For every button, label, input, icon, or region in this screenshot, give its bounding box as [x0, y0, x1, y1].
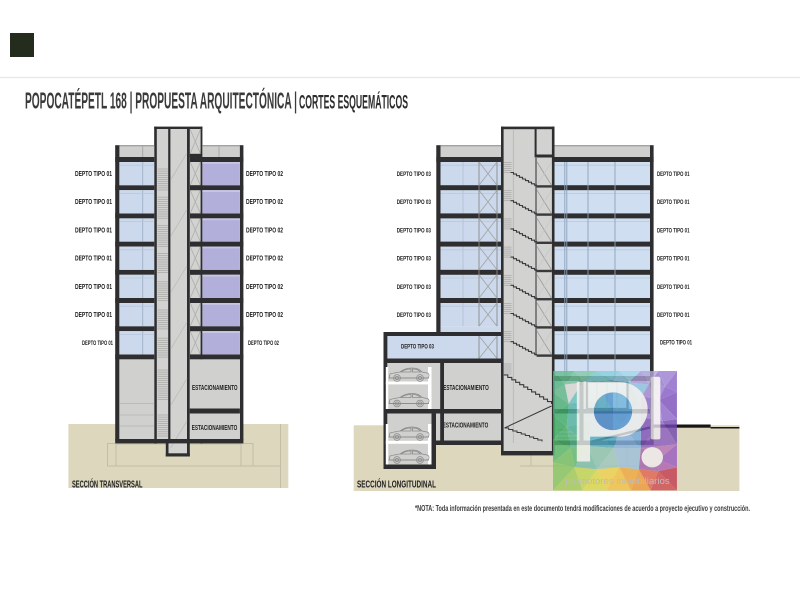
svg-text:ESTACIONAMIENTO: ESTACIONAMIENTO [443, 385, 489, 392]
svg-text:DEPTO TIPO 01: DEPTO TIPO 01 [75, 171, 112, 178]
svg-text:CORTES ESQUEMÁTICOS: CORTES ESQUEMÁTICOS [299, 91, 408, 114]
svg-text:DEPTO TIPO 02: DEPTO TIPO 02 [246, 199, 283, 206]
svg-text:DEPTO TIPO 02: DEPTO TIPO 02 [246, 312, 283, 319]
svg-text:DEPTO TIPO 01: DEPTO TIPO 01 [75, 312, 112, 319]
svg-text:*NOTA: Toda información presen: *NOTA: Toda información presentada en es… [415, 504, 750, 513]
svg-text:DEPTO TIPO 02: DEPTO TIPO 02 [246, 256, 283, 263]
svg-text:DEPTO TIPO 01: DEPTO TIPO 01 [75, 284, 112, 291]
svg-text:DEPTO TIPO 01: DEPTO TIPO 01 [82, 340, 113, 347]
svg-text:DEPTO TIPO 01: DEPTO TIPO 01 [657, 312, 690, 319]
svg-text:DEPTO TIPO 03: DEPTO TIPO 03 [397, 227, 432, 234]
svg-text:DEPTO TIPO 01: DEPTO TIPO 01 [657, 199, 690, 206]
svg-text:DEPTO TIPO 03: DEPTO TIPO 03 [397, 256, 432, 263]
svg-text:DEPTO TIPO 03: DEPTO TIPO 03 [397, 284, 432, 291]
svg-text:DEPTO TIPO 03: DEPTO TIPO 03 [401, 343, 434, 350]
svg-text:DEPTO TIPO 01: DEPTO TIPO 01 [75, 227, 112, 234]
svg-text:SECCIÓN TRANSVERSAL: SECCIÓN TRANSVERSAL [72, 478, 143, 491]
svg-text:DEPTO TIPO 02: DEPTO TIPO 02 [246, 227, 283, 234]
svg-text:DEPTO TIPO 03: DEPTO TIPO 03 [397, 199, 432, 206]
svg-text:DEPTO TIPO 01: DEPTO TIPO 01 [75, 199, 112, 206]
svg-text:DEPTO TIPO 02: DEPTO TIPO 02 [246, 284, 283, 291]
svg-text:DEPTO TIPO 02: DEPTO TIPO 02 [248, 340, 279, 347]
svg-text:POPOCATÉPETL 168 | PROPUESTA A: POPOCATÉPETL 168 | PROPUESTA ARQUITECTÓN… [25, 87, 297, 114]
svg-text:DEPTO TIPO 01: DEPTO TIPO 01 [657, 284, 690, 291]
svg-text:ESTACIONAMIENTO: ESTACIONAMIENTO [192, 425, 238, 432]
svg-text:DEPTO TIPO 01: DEPTO TIPO 01 [657, 256, 690, 263]
svg-text:SECCIÓN LONGITUDINAL: SECCIÓN LONGITUDINAL [357, 478, 436, 491]
svg-text:DEPTO TIPO 01: DEPTO TIPO 01 [657, 171, 690, 178]
svg-text:promotores inmobiliarios: promotores inmobiliarios [565, 476, 670, 487]
svg-text:ESTACIONAMIENTO: ESTACIONAMIENTO [443, 423, 489, 430]
svg-text:DEPTO TIPO 03: DEPTO TIPO 03 [397, 312, 432, 319]
svg-text:DEPTO TIPO 03: DEPTO TIPO 03 [397, 171, 432, 178]
svg-text:DEPTO TIPO 01: DEPTO TIPO 01 [660, 340, 692, 347]
svg-text:DEPTO TIPO 01: DEPTO TIPO 01 [75, 256, 112, 263]
svg-text:DEPTO TIPO 01: DEPTO TIPO 01 [657, 227, 690, 234]
svg-text:DEPTO TIPO 02: DEPTO TIPO 02 [246, 171, 283, 178]
svg-text:ESTACIONAMIENTO: ESTACIONAMIENTO [192, 385, 238, 392]
